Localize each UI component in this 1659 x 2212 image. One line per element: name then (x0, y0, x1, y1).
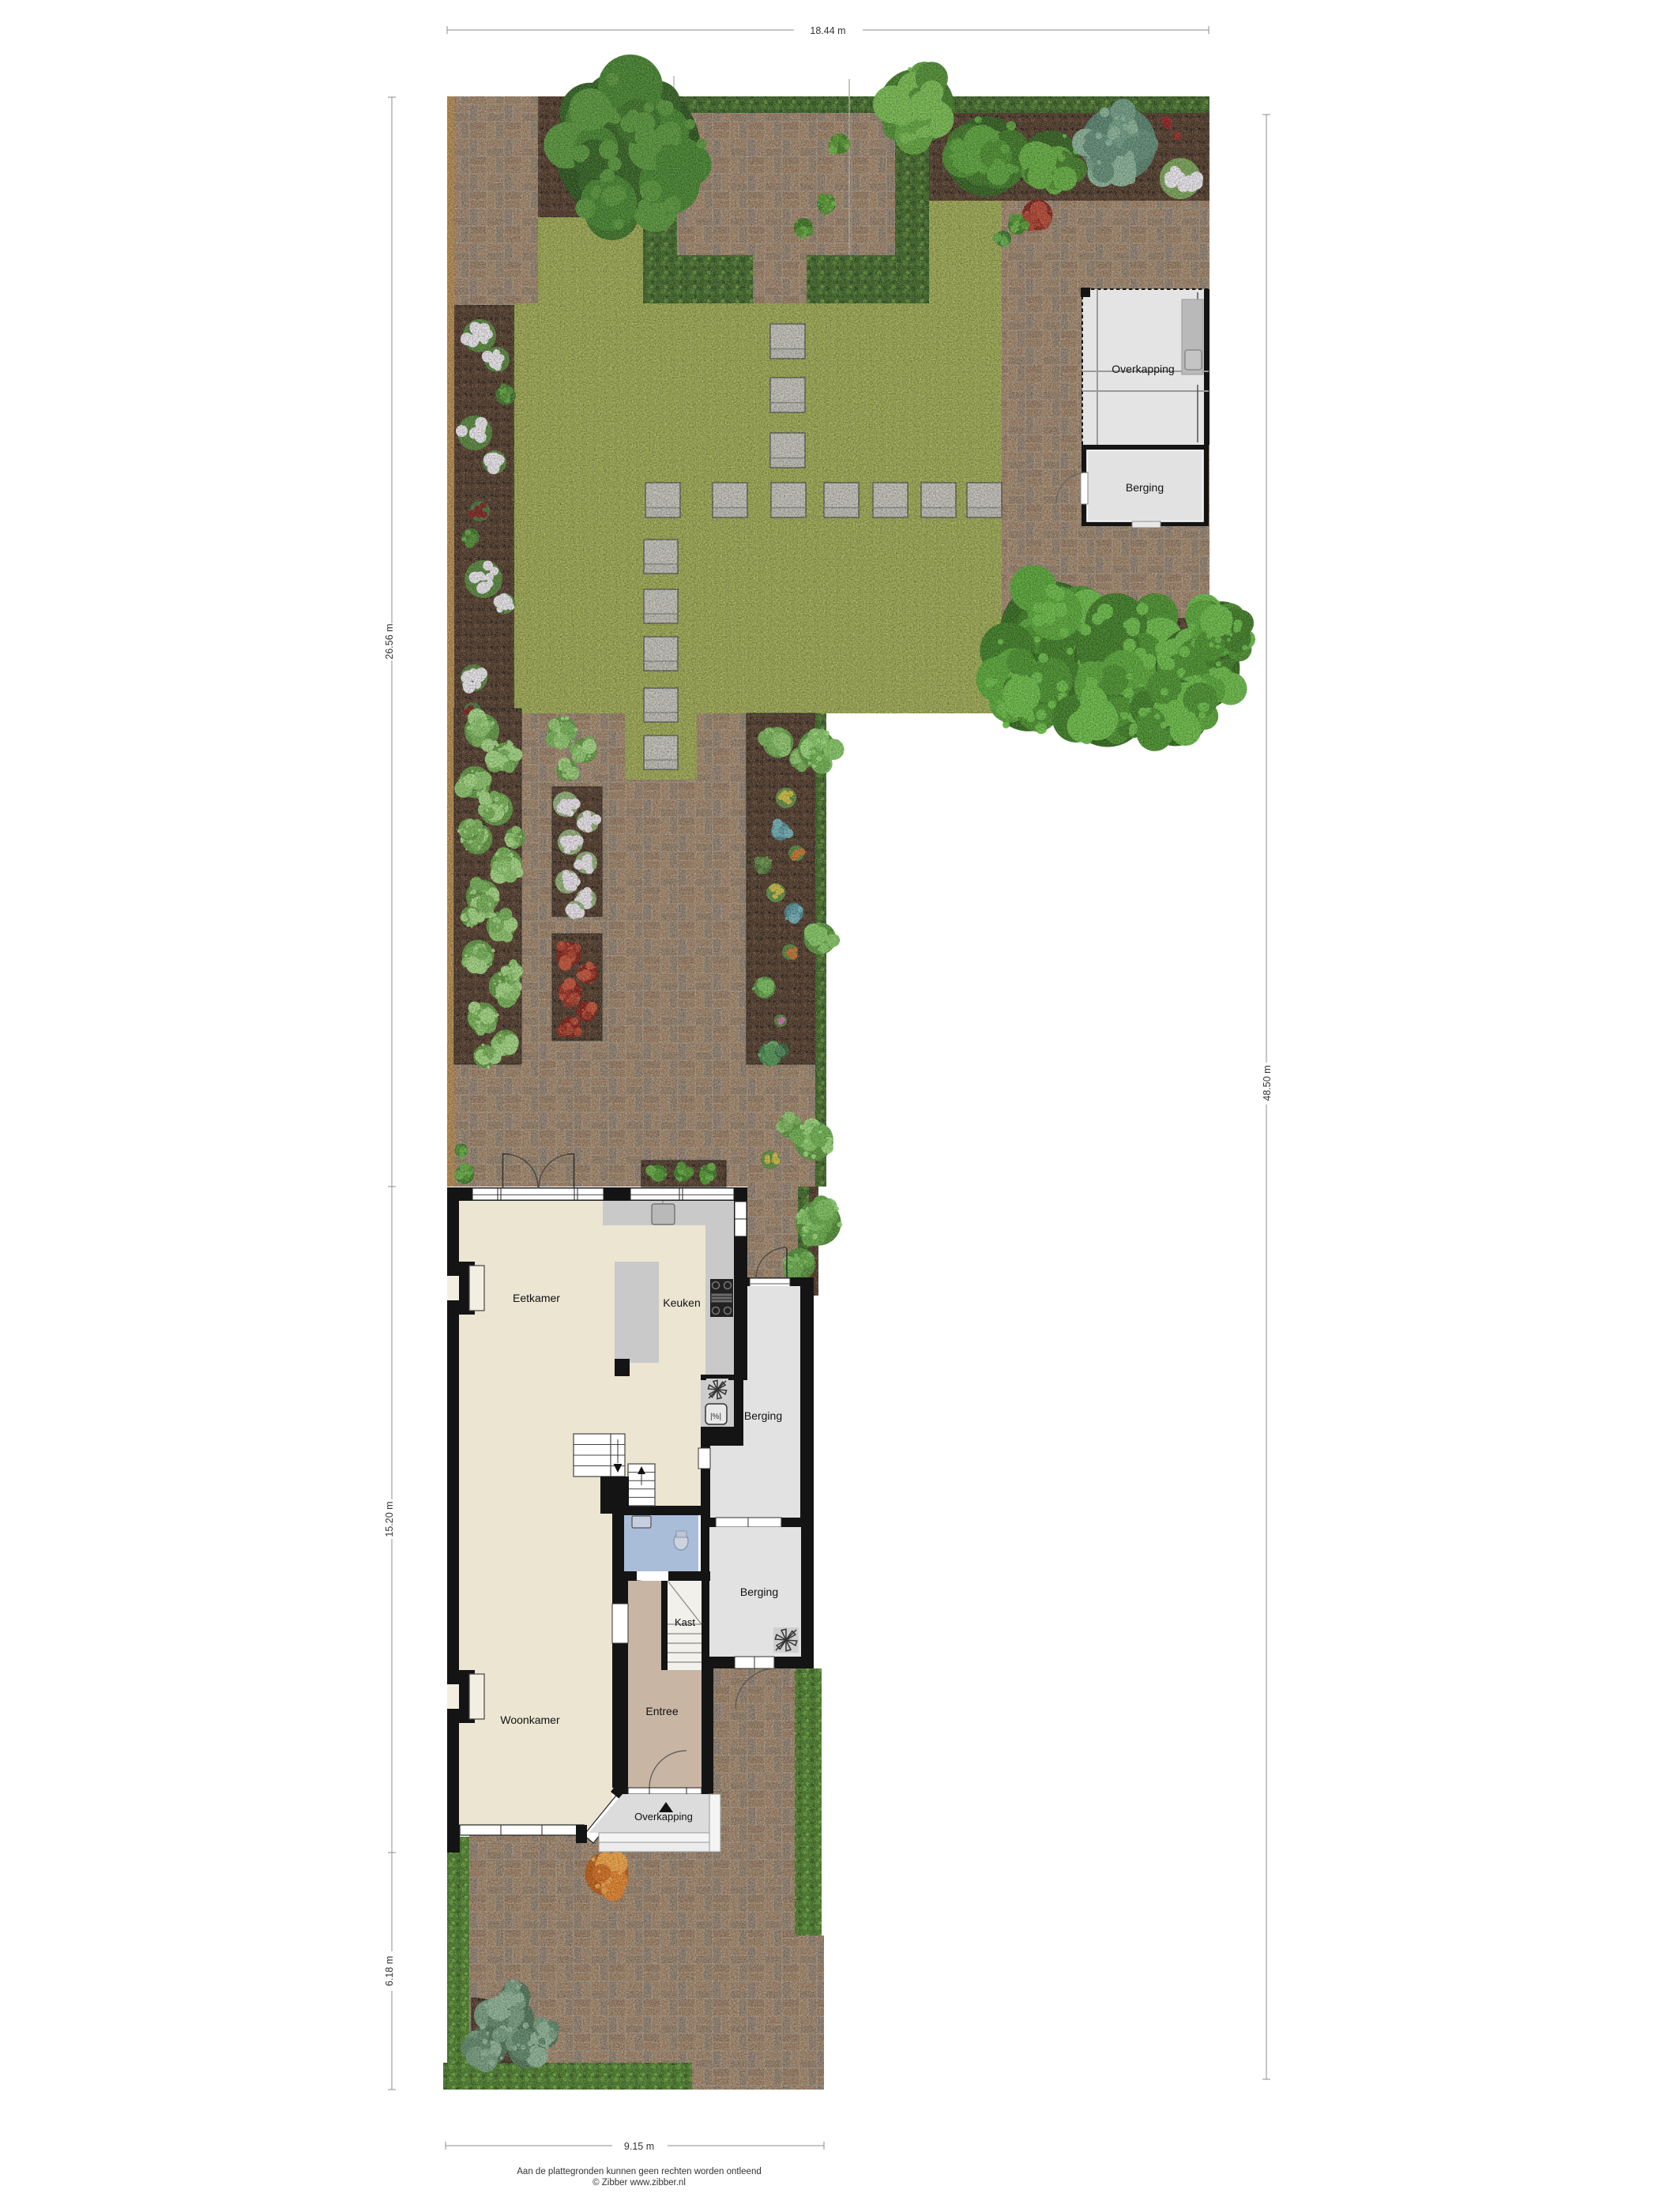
svg-text:Woonkamer: Woonkamer (500, 1714, 560, 1726)
svg-text:Aan de plattegronden kunnen ge: Aan de plattegronden kunnen geen rechten… (517, 2167, 761, 2176)
svg-text:26.56 m: 26.56 m (384, 623, 395, 659)
svg-text:© Zibber www.zibber.nl: © Zibber www.zibber.nl (592, 2178, 686, 2188)
svg-text:Berging: Berging (740, 1586, 778, 1598)
svg-text:Berging: Berging (744, 1409, 782, 1422)
svg-text:Berging: Berging (1126, 481, 1164, 494)
svg-text:15.20 m: 15.20 m (384, 1501, 395, 1537)
svg-text:|%|: |%| (710, 1413, 721, 1421)
svg-text:Keuken: Keuken (663, 1296, 700, 1309)
svg-text:Overkapping: Overkapping (1112, 363, 1174, 375)
svg-text:18.44 m: 18.44 m (810, 25, 845, 36)
svg-text:Kast: Kast (675, 1616, 695, 1628)
svg-text:Overkapping: Overkapping (634, 1811, 693, 1823)
svg-text:48.50 m: 48.50 m (1262, 1065, 1273, 1100)
svg-text:9.15 m: 9.15 m (624, 2141, 654, 2152)
svg-text:Eetkamer: Eetkamer (513, 1292, 560, 1304)
svg-text:Entree: Entree (645, 1705, 678, 1717)
svg-text:6.18 m: 6.18 m (384, 1956, 395, 1986)
